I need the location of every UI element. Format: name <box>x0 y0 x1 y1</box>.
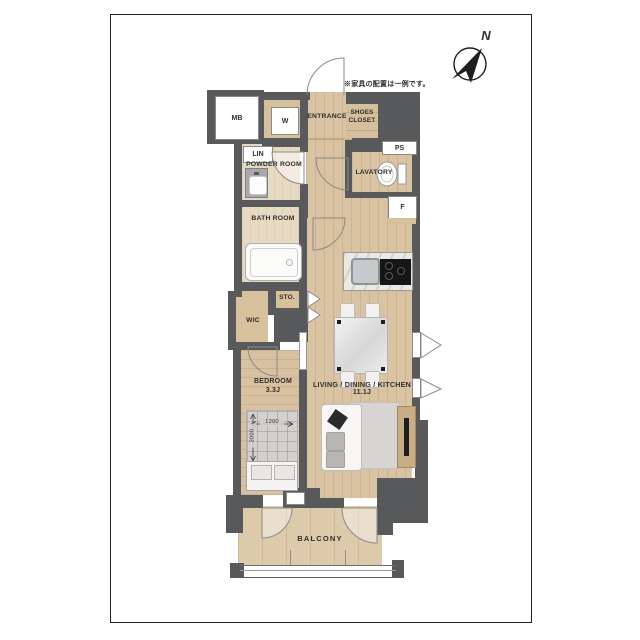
bed-length-dim: 2000 <box>249 424 256 448</box>
wall-segment <box>243 495 263 508</box>
ldk-label: LIVING / DINING / KITCHEN 11.1J <box>310 380 414 398</box>
sofa-cushion <box>326 432 345 451</box>
furniture-note: ※家具の配置は一例です。 <box>344 81 428 90</box>
wall-segment <box>228 291 236 348</box>
kitchen-sink <box>351 258 380 285</box>
balcony-post-right <box>392 560 404 578</box>
ldk-name: LIVING / DINING / KITCHEN <box>310 380 414 389</box>
table-leg <box>381 320 385 324</box>
balcony-railing <box>240 570 396 571</box>
bathtub-drain <box>286 259 293 266</box>
bay-window-frame <box>412 332 421 358</box>
bedroom-label: BEDROOM 3.3J <box>243 378 303 396</box>
table-leg <box>337 320 341 324</box>
wall-bottom-right-mass <box>377 478 428 523</box>
mb-label: MB <box>232 115 243 122</box>
bedroom-size: 3.3J <box>243 387 303 396</box>
sofa-cushion <box>326 451 345 468</box>
compass-n-label: N <box>476 28 496 44</box>
wall-left <box>234 143 242 297</box>
wall-segment <box>320 498 344 508</box>
ps-label: PS <box>395 145 404 152</box>
shutter-box <box>286 492 305 505</box>
wall-segment <box>346 92 420 104</box>
floor-plan-canvas: MB W PS LIN F <box>0 0 640 640</box>
storage-label: STO. <box>275 294 299 302</box>
shoes-closet-label: SHOES CLOSET <box>344 109 380 125</box>
washbasin <box>245 168 268 198</box>
balcony-divider <box>345 550 346 565</box>
lin-label: LIN <box>252 151 263 158</box>
table-leg <box>381 367 385 371</box>
lavatory-label: LAVATORY <box>350 169 398 177</box>
ldk-size: 11.1J <box>310 389 414 398</box>
pillow <box>274 465 295 480</box>
balcony-divider <box>290 550 291 565</box>
wall-segment <box>226 495 243 533</box>
wall-segment <box>234 200 304 207</box>
tv-board <box>397 406 416 468</box>
washer-space: W <box>271 107 299 135</box>
bathtub <box>245 243 302 281</box>
meter-box: MB <box>215 96 259 140</box>
wall-segment <box>378 104 412 142</box>
powder-room-label: POWDER ROOM <box>246 161 302 169</box>
bedroom-door-leaf <box>299 332 307 370</box>
wall-segment <box>299 297 307 332</box>
tv-icon <box>404 418 409 456</box>
bedroom-name: BEDROOM <box>243 378 303 387</box>
dining-table <box>334 317 388 374</box>
bath-room-label: BATH ROOM <box>247 215 299 223</box>
cooktop <box>380 259 411 285</box>
f-label: F <box>400 204 404 211</box>
refrigerator-space: F <box>388 196 417 219</box>
pipe-space: PS <box>382 141 417 155</box>
faucet-icon <box>254 172 259 175</box>
refrigerator-base <box>388 218 416 224</box>
w-label: W <box>282 118 289 125</box>
balcony-railing <box>240 565 396 566</box>
wic-label: WIC <box>238 317 268 325</box>
sofa <box>321 404 362 471</box>
wall-segment <box>412 358 420 378</box>
bed <box>246 461 298 491</box>
pillow <box>251 465 272 480</box>
genkan-step-line <box>307 138 345 140</box>
balcony-railing <box>240 577 396 578</box>
entrance-label: ENTRANCE <box>305 113 349 121</box>
wall-segment <box>234 282 302 291</box>
wall-segment <box>415 420 428 478</box>
washbasin-bowl <box>249 176 267 195</box>
kitchen-counter <box>343 252 413 291</box>
wall-segment <box>233 348 241 498</box>
sofa-throw-pillow <box>327 409 348 430</box>
balcony-label: BALCONY <box>285 534 355 543</box>
wall-segment <box>377 523 393 535</box>
bed-width-dim: 1200 <box>260 419 284 426</box>
